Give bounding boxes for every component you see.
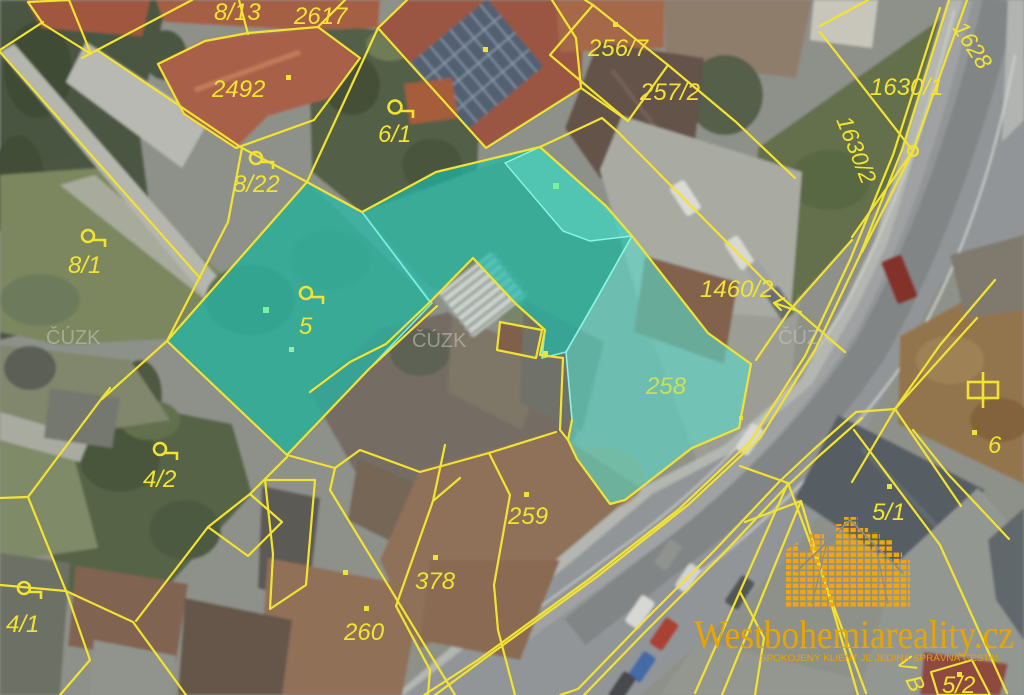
svg-text:ČÚZK: ČÚZK [46, 326, 101, 349]
svg-text:1630/1: 1630/1 [870, 74, 943, 101]
svg-text:4/1: 4/1 [6, 611, 39, 638]
svg-text:4/2: 4/2 [143, 466, 176, 493]
svg-text:256/7: 256/7 [587, 35, 650, 62]
svg-text:260: 260 [343, 619, 385, 646]
svg-text:SPOKOJENÝ KLIENT JE JEDINÁ SPR: SPOKOJENÝ KLIENT JE JEDINÁ SPRÁVNÁ CESTA… [760, 653, 998, 664]
svg-text:258: 258 [645, 373, 687, 400]
svg-text:259: 259 [507, 503, 548, 530]
svg-text:257/2: 257/2 [639, 79, 700, 106]
svg-text:6: 6 [988, 432, 1002, 459]
svg-text:5/2: 5/2 [942, 672, 975, 695]
svg-text:378: 378 [415, 568, 456, 595]
svg-text:ČÚZK: ČÚZK [778, 326, 833, 349]
svg-text:1460/2: 1460/2 [700, 276, 773, 303]
svg-text:2617: 2617 [293, 3, 349, 30]
svg-text:5/1: 5/1 [872, 499, 905, 526]
svg-text:6/1: 6/1 [378, 121, 411, 148]
svg-text:8/13: 8/13 [214, 0, 261, 26]
svg-text:5: 5 [299, 313, 313, 340]
svg-text:2492: 2492 [211, 76, 265, 103]
svg-text:ČÚZK: ČÚZK [412, 329, 467, 352]
svg-text:Westbohemiareality.cz: Westbohemiareality.cz [694, 612, 1014, 657]
svg-text:8/22: 8/22 [233, 171, 280, 198]
svg-text:8/1: 8/1 [68, 252, 101, 279]
